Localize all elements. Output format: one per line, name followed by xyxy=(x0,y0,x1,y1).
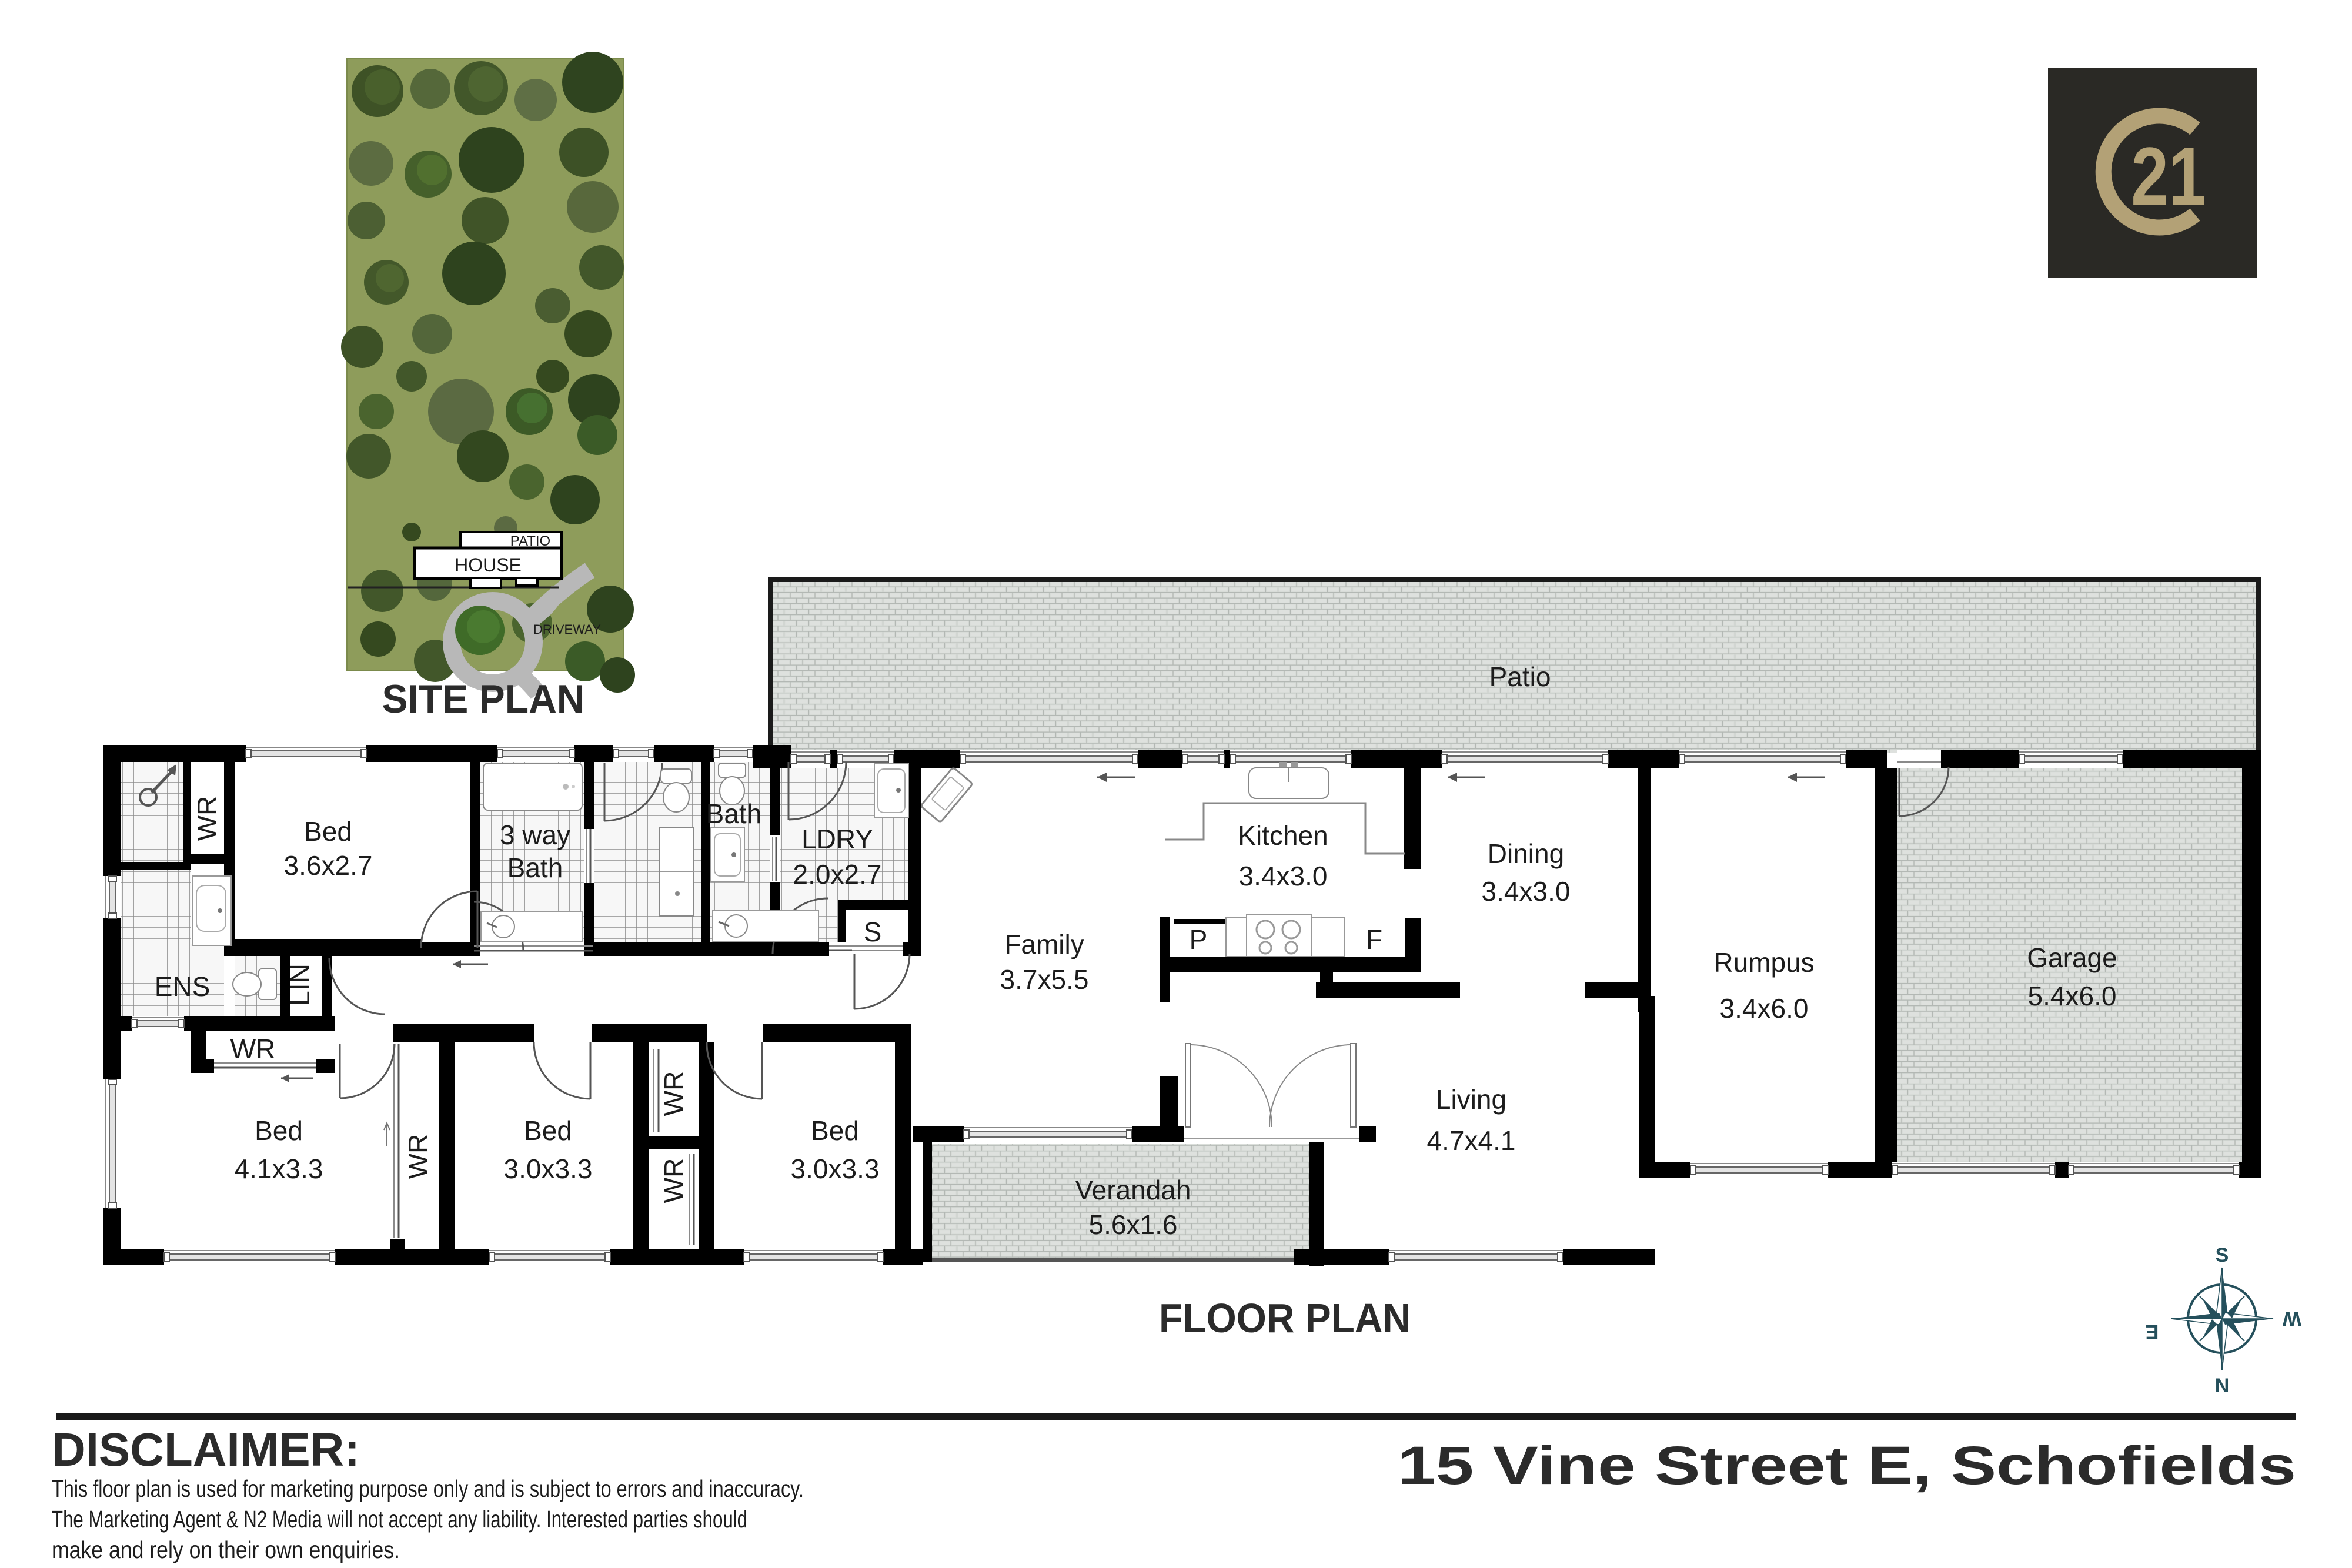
svg-text:Kitchen: Kitchen xyxy=(1238,820,1328,851)
svg-text:make and rely on their own enq: make and rely on their own enquiries. xyxy=(52,1536,400,1563)
svg-text:3.4x3.0: 3.4x3.0 xyxy=(1482,876,1571,907)
svg-text:W: W xyxy=(2282,1308,2301,1330)
svg-text:HOUSE: HOUSE xyxy=(455,554,522,576)
svg-text:Rumpus: Rumpus xyxy=(1713,947,1814,978)
svg-text:Bed: Bed xyxy=(255,1115,303,1146)
svg-text:5.4x6.0: 5.4x6.0 xyxy=(2028,981,2117,1011)
svg-text:Patio: Patio xyxy=(1489,661,1551,692)
svg-text:3.6x2.7: 3.6x2.7 xyxy=(284,850,373,881)
svg-text:LIN: LIN xyxy=(285,964,315,1006)
svg-text:P: P xyxy=(1190,924,1208,955)
svg-text:WR: WR xyxy=(659,1071,689,1116)
svg-text:Family: Family xyxy=(1004,929,1084,959)
svg-text:Dining: Dining xyxy=(1488,838,1564,869)
svg-text:5.6x1.6: 5.6x1.6 xyxy=(1089,1209,1178,1240)
svg-text:LDRY: LDRY xyxy=(801,824,873,854)
svg-text:E: E xyxy=(2146,1320,2159,1343)
svg-text:Bed: Bed xyxy=(524,1115,572,1146)
svg-text:FLOOR PLAN: FLOOR PLAN xyxy=(1159,1295,1411,1341)
svg-text:WR: WR xyxy=(403,1134,433,1179)
svg-text:The Marketing Agent & N2 Media: The Marketing Agent & N2 Media will not … xyxy=(52,1506,747,1533)
svg-text:4.1x3.3: 4.1x3.3 xyxy=(235,1154,323,1184)
svg-text:3.4x6.0: 3.4x6.0 xyxy=(1720,993,1809,1024)
svg-text:15 Vine Street E, Schofields: 15 Vine Street E, Schofields xyxy=(1398,1436,2296,1496)
svg-text:This floor plan is used for ma: This floor plan is used for marketing pu… xyxy=(52,1475,804,1502)
svg-text:S: S xyxy=(864,917,882,947)
svg-text:ENS: ENS xyxy=(155,971,211,1002)
svg-text:3.7x5.5: 3.7x5.5 xyxy=(1000,964,1089,995)
svg-text:WR: WR xyxy=(230,1034,276,1064)
svg-text:2.0x2.7: 2.0x2.7 xyxy=(793,859,882,890)
svg-text:SITE PLAN: SITE PLAN xyxy=(382,677,585,721)
svg-text:Bed: Bed xyxy=(304,816,352,847)
svg-text:Living: Living xyxy=(1436,1084,1506,1115)
svg-text:4.7x4.1: 4.7x4.1 xyxy=(1427,1125,1516,1156)
svg-text:Bed: Bed xyxy=(811,1115,859,1146)
svg-text:DRIVEWAY: DRIVEWAY xyxy=(533,622,601,637)
svg-text:3.0x3.3: 3.0x3.3 xyxy=(791,1154,880,1184)
svg-text:21: 21 xyxy=(2131,131,2206,222)
svg-text:F: F xyxy=(1366,924,1382,955)
svg-text:Bath: Bath xyxy=(507,852,563,883)
svg-text:Verandah: Verandah xyxy=(1075,1175,1191,1205)
svg-text:Bath: Bath xyxy=(706,798,762,829)
svg-text:WR: WR xyxy=(192,796,222,841)
svg-text:DISCLAIMER:: DISCLAIMER: xyxy=(52,1423,360,1476)
svg-text:3 way: 3 way xyxy=(500,820,570,850)
svg-text:N: N xyxy=(2215,1375,2230,1397)
svg-text:S: S xyxy=(2216,1244,2229,1266)
svg-text:3.4x3.0: 3.4x3.0 xyxy=(1239,861,1328,891)
svg-text:WR: WR xyxy=(659,1158,689,1203)
svg-text:Garage: Garage xyxy=(2027,942,2117,973)
svg-text:3.0x3.3: 3.0x3.3 xyxy=(504,1154,593,1184)
